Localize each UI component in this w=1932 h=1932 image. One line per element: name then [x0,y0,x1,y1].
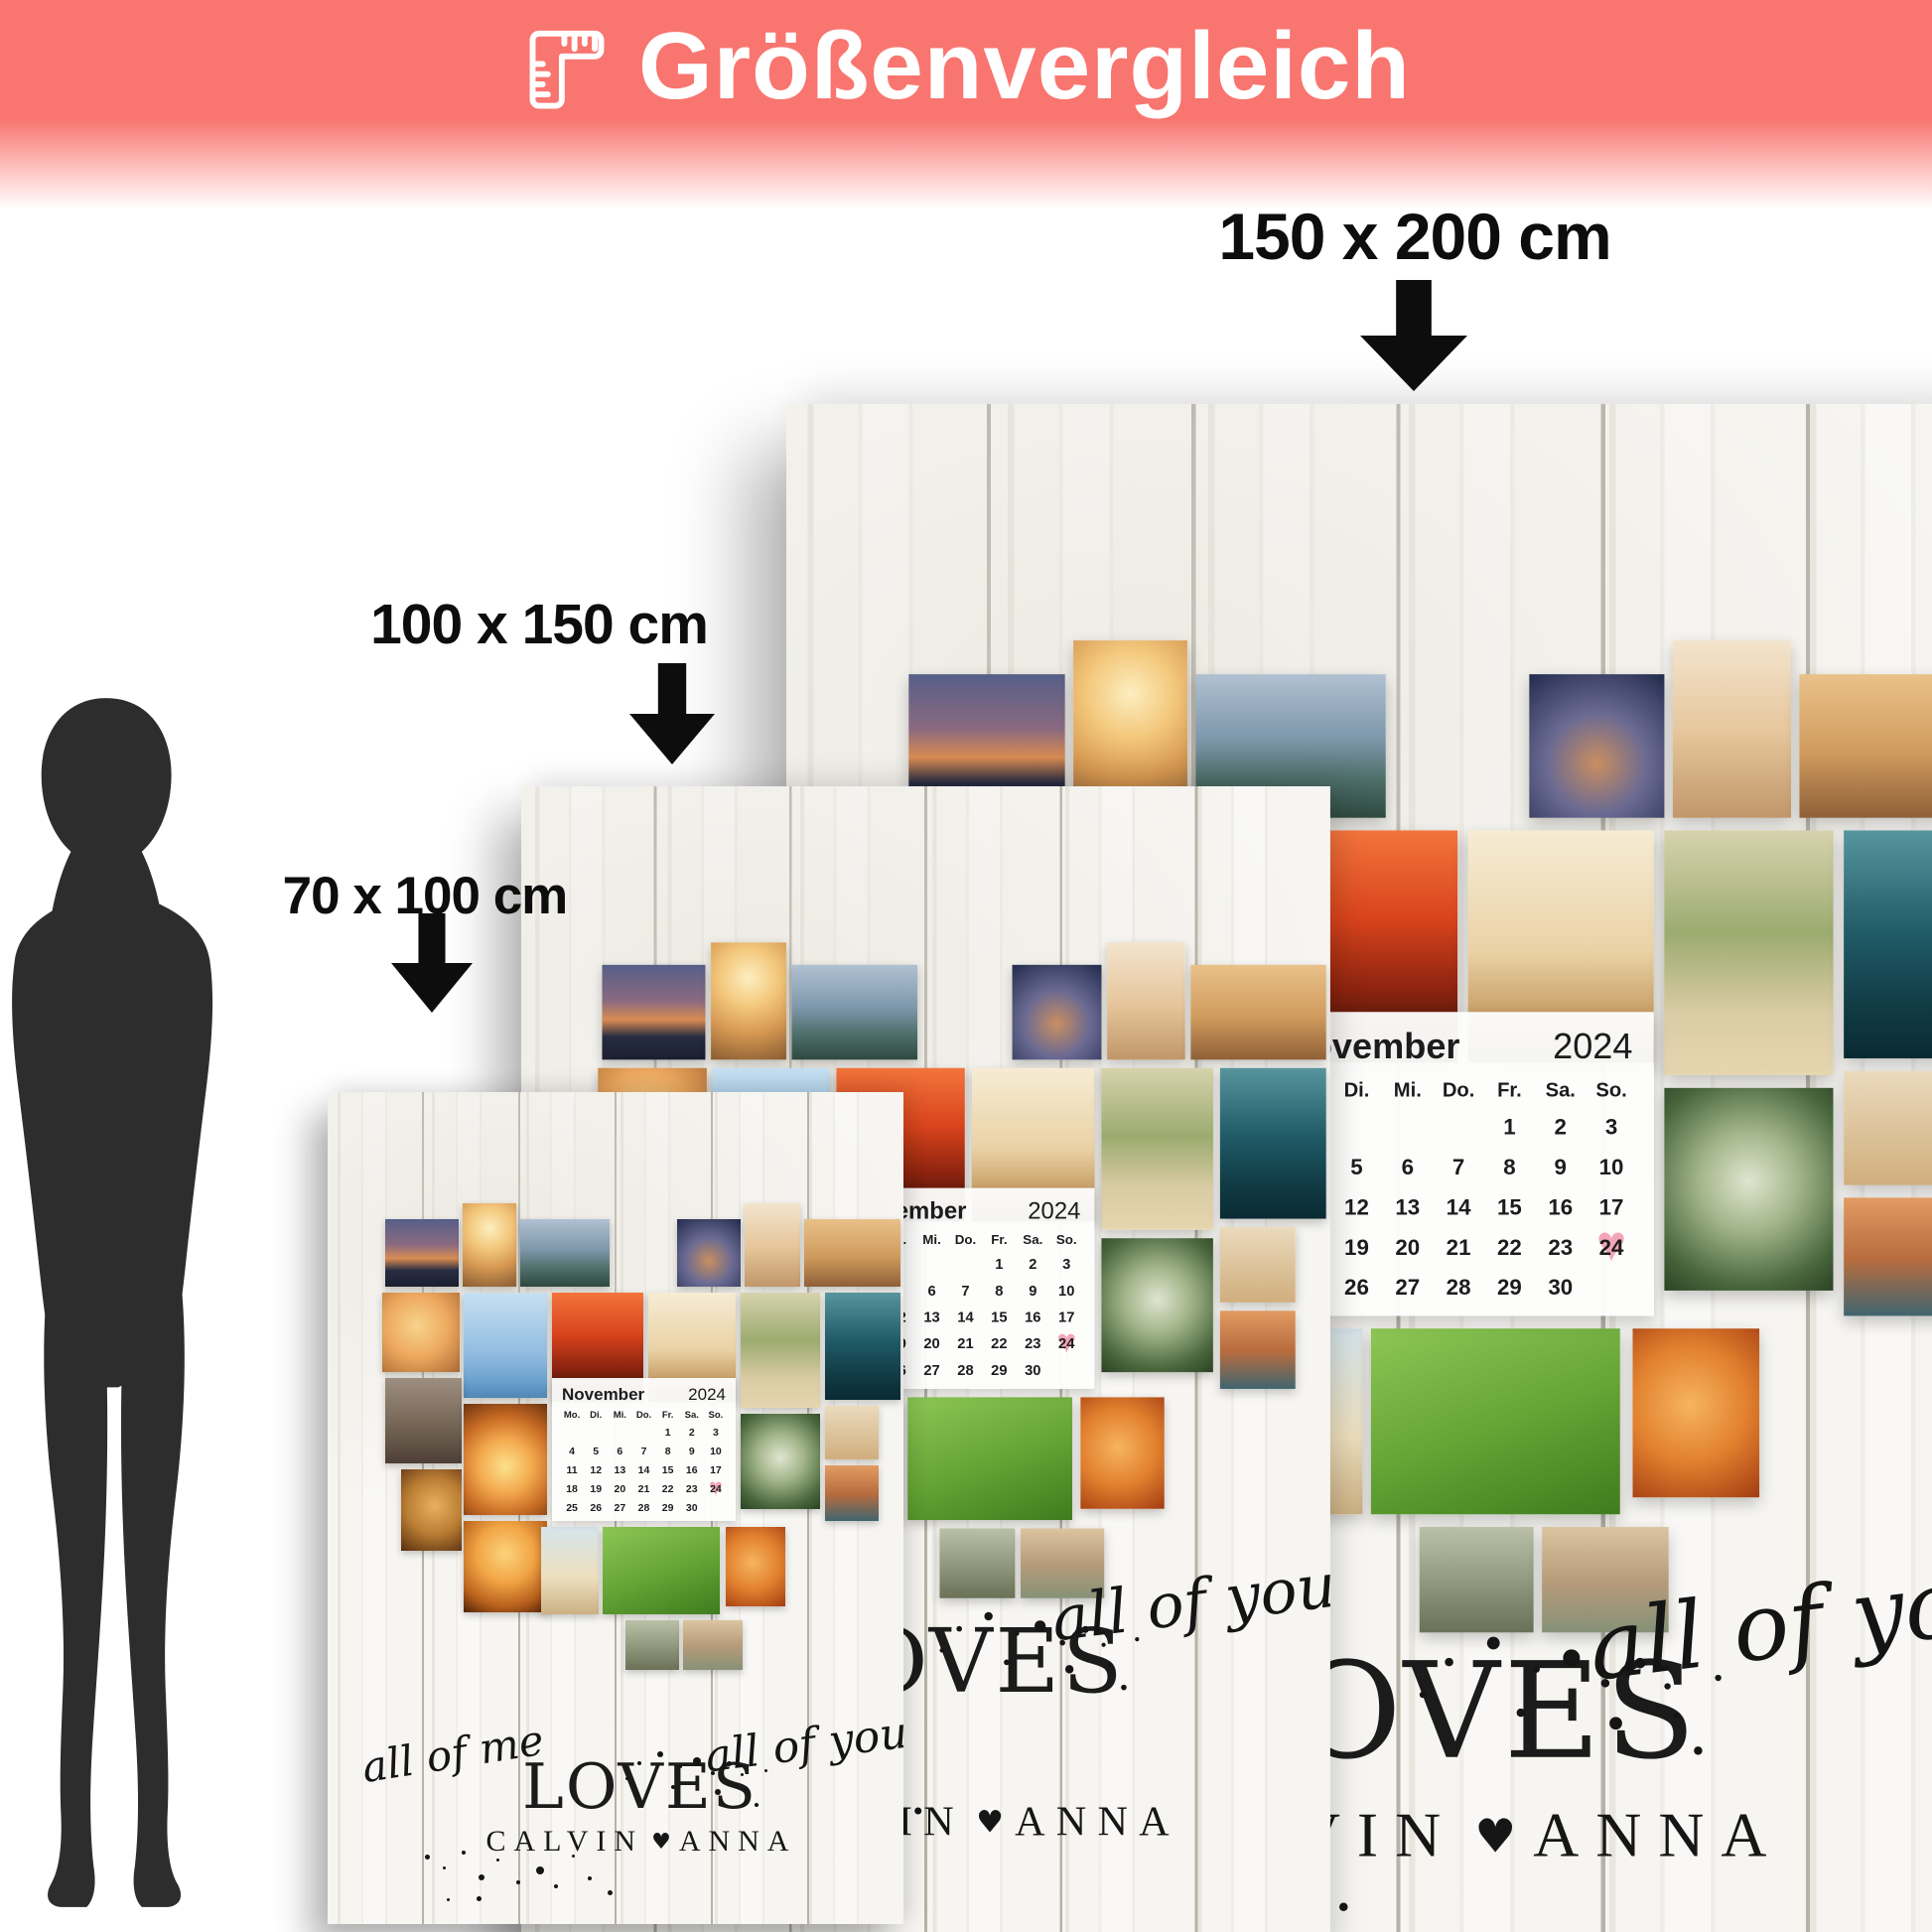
photo-beach-walk-small [541,1527,599,1614]
splatter-dot [1004,1660,1010,1666]
calendar-date: 2 [1016,1252,1049,1277]
phrase-block: all of meLOVESall of you [328,1700,903,1888]
calendar-date: 21 [1433,1229,1483,1267]
size-label-150x200: 150 x 200 cm [1122,199,1708,274]
name-right: ANNA [1533,1801,1783,1870]
photo-golden-beach-lift [463,1203,516,1287]
blanket-70x100: November2024Mo.Di.Mi.Do.Fr.Sa.So.1234567… [328,1092,903,1924]
calendar-date: ♥24 [1049,1331,1083,1356]
calendar-date: ♥24 [1586,1229,1636,1267]
calendar-date [1331,1109,1382,1147]
calendar-date: 29 [982,1358,1016,1383]
calendar-date: 4 [560,1443,584,1460]
calendar-day-header: Fr. [656,1409,680,1423]
calendar-date [704,1499,728,1517]
splatter-dot [1101,1643,1105,1647]
calendar-date: 6 [915,1279,949,1304]
splatter-dot [1107,1662,1111,1666]
size-label-100x150: 100 x 150 cm [316,592,762,657]
photo-beach-standing [825,1406,879,1459]
splatter-dot [1664,1683,1670,1689]
calendar-date: 12 [584,1461,608,1479]
calendar-day-header: Do. [631,1409,655,1423]
splatter-dot [637,1761,641,1765]
calendar-date: 9 [680,1443,704,1460]
calendar-date: 26 [584,1499,608,1517]
splatter-dot [447,1898,450,1901]
photo-grass-couple [603,1527,720,1614]
calendar-date [584,1424,608,1442]
photo-shore-embrace [825,1465,879,1521]
calendar-date: 3 [1049,1252,1083,1277]
photo-shore-embrace [1844,1197,1932,1315]
photo-pinky-promise [726,1527,785,1606]
page-title: Größenvergleich [638,19,1411,114]
calendar-date: 10 [1586,1149,1636,1186]
calendar-date: 1 [1484,1109,1535,1147]
calendar-date: 13 [1382,1189,1433,1227]
calendar-date: 22 [656,1480,680,1498]
calendar-date [1382,1109,1433,1147]
splatter-dot [1609,1717,1622,1729]
calendar-header: November2024 [560,1385,728,1405]
photo-wedding-bench [625,1620,679,1670]
name-right: ANNA [1015,1799,1180,1845]
phrase-script-left: all of me [358,1716,547,1792]
splatter-dot [711,1771,715,1775]
calendar-date [608,1424,631,1442]
ruler-icon [521,21,613,112]
splatter-dot [1135,1637,1139,1641]
splatter-dot [1673,1713,1679,1719]
calendar-date: 18 [560,1480,584,1498]
calendar-date: 26 [1331,1270,1382,1308]
calendar-date: 5 [1331,1149,1382,1186]
calendar-date: 15 [656,1461,680,1479]
splatter-dot [1715,1675,1721,1681]
calendar-date: 7 [1433,1149,1483,1186]
splatter-dot [715,1789,721,1795]
photo-wedding-arch [1101,1238,1212,1372]
down-arrow-70x100 [391,913,473,1013]
calendar-date: 27 [915,1358,949,1383]
calendar-date [1433,1109,1483,1147]
names-row: CALVIN♥ANNA [353,1825,903,1859]
calendar-day-header: Di. [1331,1077,1382,1107]
photo-crowd-heart-hands [464,1521,547,1612]
calendar-date: 2 [680,1424,704,1442]
photo-wine-toast [401,1469,462,1551]
calendar-date: 23 [1016,1331,1049,1356]
calendar-day-header: Mi. [1382,1077,1433,1107]
splatter-dot [1534,1666,1540,1672]
splatter-dot [755,1803,759,1807]
down-arrow-100x150 [629,663,715,764]
splatter-dot [479,1874,484,1880]
calendar-day-header: Mi. [915,1231,949,1251]
heart-icon: ♥ [1457,1812,1533,1864]
splatter-dot [657,1751,663,1757]
calendar-header: November2024 [1280,1027,1636,1069]
photo-beach-piggyback [745,1203,800,1287]
calendar-date: 30 [680,1499,704,1517]
splatter-dot [1694,1746,1703,1755]
phrase-script-right: all of you [703,1708,903,1783]
calendar-date: 16 [680,1461,704,1479]
calendar-date: 8 [982,1279,1016,1304]
calendar-date: 14 [631,1461,655,1479]
photo-wedding-arch [1664,1088,1833,1291]
splatter-dot [608,1890,613,1895]
splatter-dot [1635,1658,1646,1669]
splatter-dot [1065,1665,1073,1673]
splatter-dot [1601,1679,1610,1688]
splatter-dot [671,1785,675,1789]
photo-beach-standing [1220,1227,1296,1303]
calendar-year: 2024 [688,1385,726,1405]
calendar: November2024Mo.Di.Mi.Do.Fr.Sa.So.1234567… [552,1378,736,1521]
calendar-date: 20 [915,1331,949,1356]
calendar-date: 15 [1484,1189,1535,1227]
photo-beach-standing [1844,1071,1932,1185]
splatter-dot [741,1773,744,1776]
splatter-dot [1015,1631,1019,1635]
photo-rain-hug [385,1378,462,1463]
calendar-date [560,1424,584,1442]
calendar-date: 22 [982,1331,1016,1356]
photo-boardwalk-walk [804,1219,900,1287]
splatter-dot [745,1787,748,1790]
splatter-dot [625,1777,628,1780]
calendar-date: 11 [560,1461,584,1479]
calendar-date: 20 [608,1480,631,1498]
calendar-date: 2 [1535,1109,1586,1147]
photo-grass-couple [907,1397,1072,1520]
calendar-date: 3 [1586,1109,1636,1147]
photo-mountain-lake-couple [520,1219,610,1287]
splatter-dot [1563,1649,1580,1666]
photo-shore-embrace [1220,1311,1296,1389]
splatter-dot [679,1765,682,1768]
photo-mountain-lake-couple [792,965,917,1060]
splatter-dot [1487,1637,1500,1650]
calendar-date: 23 [680,1480,704,1498]
splatter-dot [1517,1709,1526,1718]
photo-pinky-promise [1080,1397,1164,1508]
calendar-day-header: Fr. [982,1231,1016,1251]
calendar-date: 29 [1484,1270,1535,1308]
calendar-year: 2024 [1553,1027,1632,1069]
photo-dunes-wedding [741,1293,820,1408]
calendar-date: 19 [1331,1229,1382,1267]
photo-blue-sky-couple [464,1293,547,1398]
calendar-grid: Mo.Di.Mi.Do.Fr.Sa.So.1234567891011121314… [1280,1077,1636,1308]
calendar-year: 2024 [1028,1197,1080,1225]
splatter-dot [477,1896,482,1901]
calendar-date: 9 [1016,1279,1049,1304]
photo-teal-sea-couple [1220,1068,1326,1219]
calendar-day-header: Fr. [1484,1077,1535,1107]
phrase-script-right: all of you [1584,1543,1932,1703]
woman-silhouette [4,689,240,1926]
calendar-date: 19 [584,1480,608,1498]
splatter-dot [1035,1620,1045,1631]
calendar-date: 21 [631,1480,655,1498]
splatter-dot [516,1880,520,1884]
phrase-script-right: all of you [1048,1551,1330,1656]
calendar-date: 16 [1016,1306,1049,1330]
calendar-date: 7 [631,1443,655,1460]
calendar-date: 14 [1433,1189,1483,1227]
calendar-date: 27 [608,1499,631,1517]
splatter-dot [536,1866,544,1874]
photo-golden-beach-lift [711,942,786,1059]
calendar-date: 9 [1535,1149,1586,1186]
photo-golden-field [382,1293,460,1372]
photo-boardwalk-walk [1799,674,1932,818]
calendar-date: 3 [704,1424,728,1442]
photo-boardwalk-walk [1190,965,1325,1060]
photo-dusk-heart-hands [385,1219,459,1287]
calendar-date: 14 [949,1306,983,1330]
photo-wedding-arch [741,1414,820,1509]
photo-dunes-wedding [1664,830,1833,1075]
header-banner: Größenvergleich [0,0,1932,208]
photo-teal-sea-couple [1844,830,1932,1058]
calendar-date: 29 [656,1499,680,1517]
calendar-date: 30 [1016,1358,1049,1383]
calendar-date: 7 [949,1279,983,1304]
splatter-dot [1339,1902,1348,1911]
splatter-dot [1445,1658,1453,1667]
splatter-dot [443,1866,446,1869]
calendar-date: 23 [1535,1229,1586,1267]
calendar-date: 16 [1535,1189,1586,1227]
calendar-day-header: So. [704,1409,728,1423]
calendar-day-header: Sa. [680,1409,704,1423]
splatter-dot [984,1612,992,1620]
calendar-day-header: Di. [584,1409,608,1423]
calendar-date: 28 [631,1499,655,1517]
calendar-date [949,1252,983,1277]
photo-night-kiss [1529,674,1664,818]
calendar-day-header: Sa. [1535,1077,1586,1107]
splatter-dot [496,1859,499,1862]
calendar-date [631,1424,655,1442]
calendar-date: 8 [656,1443,680,1460]
photo-dusk-heart-hands [602,965,705,1060]
calendar-month: November [562,1385,644,1405]
name-right: ANNA [679,1825,797,1858]
down-arrow-150x200 [1360,280,1467,391]
photo-beach-piggyback [1107,942,1185,1059]
size-comparison-graphic: Größenvergleich 150 x 200 cm 100 x 150 c… [0,0,1932,1932]
splatter-dot [764,1769,767,1772]
photo-grass-couple [1371,1328,1620,1514]
calendar-date: 20 [1382,1229,1433,1267]
calendar-day-header: So. [1049,1231,1083,1251]
calendar-grid: Mo.Di.Mi.Do.Fr.Sa.So.1234567891011121314… [560,1409,728,1517]
calendar-day-header: Mo. [560,1409,584,1423]
photo-night-kiss [677,1219,741,1287]
calendar-date: 12 [1331,1189,1382,1227]
calendar-day-header: So. [1586,1077,1636,1107]
photo-teal-sea-couple [825,1293,900,1400]
blanket-design: November2024Mo.Di.Mi.Do.Fr.Sa.So.1234567… [328,1092,903,1924]
calendar-date: 10 [704,1443,728,1460]
calendar-date: 6 [608,1443,631,1460]
calendar-date [1049,1358,1083,1383]
splatter-dot [588,1876,592,1880]
heart-icon: ♥ [965,1806,1015,1841]
splatter-dot [554,1884,558,1888]
photo-tan-hug [683,1620,743,1670]
name-left: CALVIN [486,1825,644,1858]
calendar-date: 8 [1484,1149,1535,1186]
photo-beach-piggyback [1673,640,1791,818]
calendar-day-header: Do. [1433,1077,1483,1107]
splatter-dot [1420,1692,1426,1698]
splatter-dot [1121,1685,1127,1691]
heart-icon: ♥ [643,1830,679,1855]
splatter-dot [1082,1626,1089,1633]
calendar-day-header: Mi. [608,1409,631,1423]
calendar-date: 13 [608,1461,631,1479]
calendar-date: 28 [949,1358,983,1383]
splatter-dot [727,1761,732,1766]
calendar-date: ♥24 [704,1480,728,1498]
calendar-date: 10 [1049,1279,1083,1304]
calendar-date: 25 [560,1499,584,1517]
photo-sunset-chairs [464,1404,547,1515]
calendar-date: 28 [1433,1270,1483,1308]
calendar-date: 6 [1382,1149,1433,1186]
photo-dunes-wedding [1101,1068,1212,1230]
calendar-date: 15 [982,1306,1016,1330]
calendar-date: 27 [1382,1270,1433,1308]
calendar-date: 22 [1484,1229,1535,1267]
calendar-date: 1 [982,1252,1016,1277]
calendar-date: 1 [656,1424,680,1442]
splatter-dot [940,1648,944,1652]
calendar-date [915,1252,949,1277]
photo-pinky-promise [1633,1328,1760,1497]
calendar-date: 21 [949,1331,983,1356]
photo-night-kiss [1013,965,1102,1060]
calendar-date: 5 [584,1443,608,1460]
calendar-day-header: Do. [949,1231,983,1251]
splatter-dot [956,1626,962,1632]
calendar-date: 30 [1535,1270,1586,1308]
calendar-date [1586,1270,1636,1308]
splatter-dot [1059,1640,1065,1646]
splatter-dot [693,1757,701,1765]
calendar-day-header: Sa. [1016,1231,1049,1251]
calendar-date: 13 [915,1306,949,1330]
